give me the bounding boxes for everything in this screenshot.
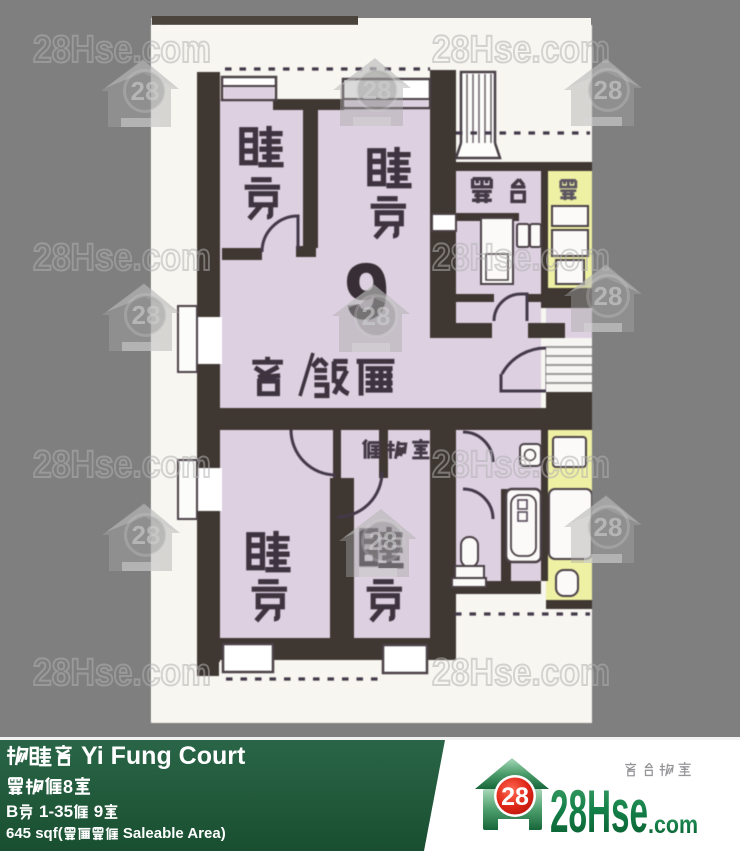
svg-text:28Hse.com: 28Hse.com bbox=[33, 444, 211, 486]
svg-text:28Hse: 28Hse bbox=[550, 778, 648, 845]
svg-text:.com: .com bbox=[648, 811, 698, 839]
svg-text:28Hse.com: 28Hse.com bbox=[33, 237, 211, 279]
svg-text:28Hse.com: 28Hse.com bbox=[33, 29, 211, 71]
svg-text:28Hse.com: 28Hse.com bbox=[432, 237, 610, 279]
svg-text:28: 28 bbox=[501, 783, 529, 811]
svg-text:28Hse.com: 28Hse.com bbox=[432, 444, 610, 486]
svg-text:28Hse.com: 28Hse.com bbox=[432, 652, 610, 694]
svg-text:28Hse.com: 28Hse.com bbox=[432, 29, 610, 71]
svg-text:28Hse.com: 28Hse.com bbox=[33, 652, 211, 694]
